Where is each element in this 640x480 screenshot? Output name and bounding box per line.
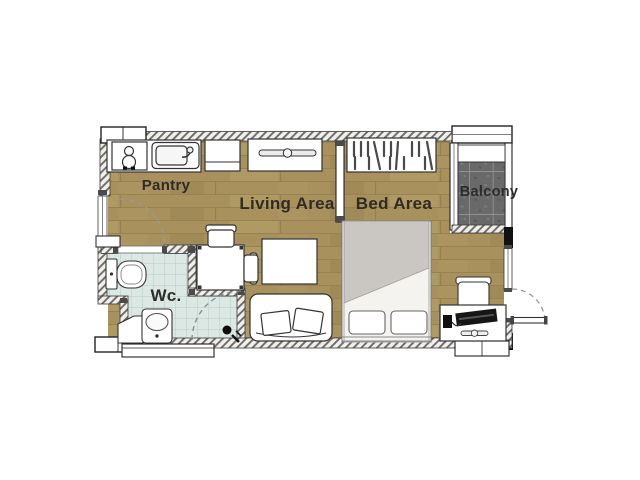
floor-drain — [223, 326, 232, 335]
double-bed — [342, 221, 431, 342]
wardrobe — [347, 138, 436, 172]
room-label-living: Living Area — [239, 194, 334, 213]
column-left-mid — [96, 236, 120, 247]
sofa — [250, 294, 332, 341]
room-label-balcony: Balcony — [460, 184, 519, 200]
stove — [112, 142, 147, 170]
floor-plan: Pantry Living Area Bed Area Balcony Wc. — [0, 0, 640, 480]
room-label-bed: Bed Area — [356, 194, 433, 213]
column-black-upper — [504, 227, 513, 248]
room-label-pantry: Pantry — [142, 177, 191, 194]
dining-chair-right — [244, 253, 258, 284]
ledge-below-wc — [122, 344, 214, 357]
wc-door-threshold — [118, 246, 164, 253]
door-tip-cap — [544, 316, 548, 325]
room-label-wc: Wc. — [150, 286, 181, 305]
entrance-door-leaf — [512, 318, 546, 324]
air-condenser — [458, 145, 505, 162]
coffee-table — [262, 239, 317, 284]
door-hinge-cap — [511, 316, 515, 325]
wall-divider-living-bed — [336, 141, 344, 222]
kitchen-sink — [152, 143, 199, 169]
dining-chair-top — [206, 225, 236, 247]
mouse — [471, 330, 477, 336]
pillow — [349, 311, 385, 334]
desk — [440, 305, 506, 341]
tv-console — [248, 139, 322, 171]
pantry-fixtures — [107, 140, 240, 172]
balcony-bottom-wall — [452, 225, 505, 233]
computer-tower — [443, 315, 452, 328]
floor-plan-svg: Pantry Living Area Bed Area Balcony Wc. — [0, 0, 640, 480]
dining-table — [197, 245, 244, 290]
toilet — [106, 259, 146, 289]
pantry-cabinet — [205, 140, 240, 171]
pillow — [391, 311, 427, 334]
wall-wc-right — [237, 294, 245, 345]
